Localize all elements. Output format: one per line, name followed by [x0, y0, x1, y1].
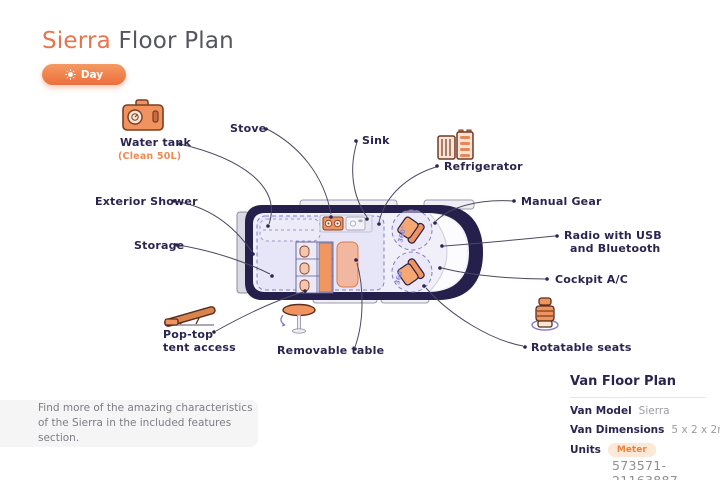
stove-unit — [323, 217, 343, 230]
cockpit-ac-label: Cockpit A/C — [555, 273, 628, 286]
units-meter-badge[interactable]: Meter — [608, 443, 656, 457]
van-model-label: Van Model — [570, 405, 632, 417]
radio-label-line1: Radio with USB — [564, 229, 662, 242]
pop-top-label: Pop-top tent access — [163, 328, 236, 354]
floor-plan-page: Sierra Floor Plan Day — [0, 0, 720, 480]
stove-label: Stove — [230, 122, 266, 135]
van-info-panel: Van Floor Plan Van Model Sierra Van Dime… — [570, 374, 706, 464]
storage-cabinet — [260, 219, 320, 241]
units-row: Units Meter — [570, 443, 706, 457]
sink-label: Sink — [362, 134, 390, 147]
refrigerator-icon — [436, 128, 476, 162]
features-note-line2: of the Sierra in the included features s… — [38, 416, 258, 446]
pop-top-tent-icon — [162, 300, 218, 328]
storage-label: Storage — [134, 239, 184, 252]
removable-table-shape — [337, 242, 358, 287]
water-tank-capacity: (Clean 50L) — [118, 150, 181, 163]
sink-unit — [346, 217, 365, 230]
features-note: Find more of the amazing characteristics… — [0, 400, 258, 447]
refrigerator-label: Refrigerator — [444, 160, 523, 173]
rotatable-seats-icon — [527, 296, 563, 334]
van-dimensions-label: Van Dimensions — [570, 424, 664, 436]
removable-table-label: Removable table — [277, 344, 384, 357]
bed-bench — [296, 242, 333, 293]
water-tank-icon — [120, 98, 166, 132]
van-dimensions-row: Van Dimensions 5 x 2 x 2m — [570, 424, 706, 436]
watermark-id: 573571-21163887 — [612, 458, 720, 480]
van-info-heading: Van Floor Plan — [570, 374, 706, 389]
van-dimensions-value: 5 x 2 x 2m — [671, 424, 720, 436]
removable-table-icon — [274, 302, 316, 336]
radio-label: Radio with USB and Bluetooth — [564, 229, 662, 255]
pop-top-label-line2: tent access — [163, 341, 236, 354]
features-note-line1: Find more of the amazing characteristics — [38, 401, 258, 416]
exterior-shower-label: Exterior Shower — [95, 195, 198, 208]
van-model-value: Sierra — [639, 405, 670, 417]
manual-gear-label: Manual Gear — [521, 195, 602, 208]
van-model-row: Van Model Sierra — [570, 405, 706, 417]
radio-label-line2: and Bluetooth — [564, 242, 662, 255]
panel-divider — [570, 397, 706, 398]
units-label: Units — [570, 444, 601, 456]
pop-top-label-line1: Pop-top — [163, 328, 236, 341]
water-tank-label: Water tank — [120, 136, 191, 149]
rotatable-seats-label: Rotatable seats — [531, 341, 632, 354]
